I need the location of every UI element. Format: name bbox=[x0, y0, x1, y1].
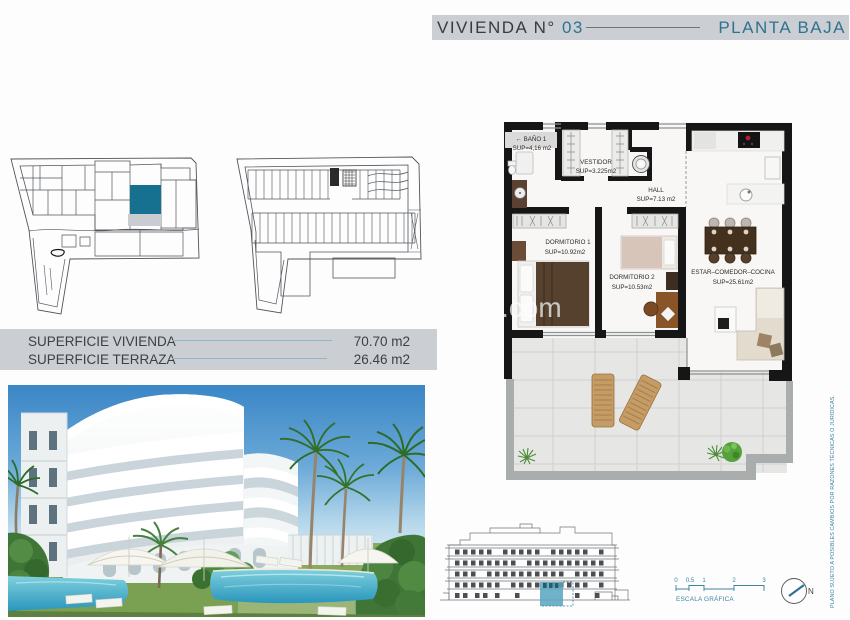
svg-text:DORMITORIO 2: DORMITORIO 2 bbox=[609, 274, 655, 281]
svg-text:ESCALA GRÁFICA: ESCALA GRÁFICA bbox=[676, 594, 734, 603]
svg-text:2: 2 bbox=[732, 578, 736, 584]
svg-text:HALL: HALL bbox=[648, 187, 664, 194]
svg-text:3: 3 bbox=[762, 578, 766, 584]
svg-text:SUP=25.61m2: SUP=25.61m2 bbox=[713, 279, 754, 286]
svg-text:1: 1 bbox=[702, 578, 706, 584]
svg-text:VESTIDOR: VESTIDOR bbox=[580, 159, 612, 166]
svg-text:DORMITORIO 1: DORMITORIO 1 bbox=[545, 239, 591, 246]
svg-text:0: 0 bbox=[674, 578, 678, 584]
svg-text:SUP=3.225m2: SUP=3.225m2 bbox=[576, 168, 617, 175]
svg-text:ESTAR–COMEDOR–COCINA: ESTAR–COMEDOR–COCINA bbox=[691, 269, 775, 276]
svg-text:N: N bbox=[808, 587, 814, 596]
svg-text:SUP=7.13 m2: SUP=7.13 m2 bbox=[637, 196, 676, 203]
svg-text:.com: .com bbox=[501, 292, 562, 323]
svg-text:SUP=4,16 m2: SUP=4,16 m2 bbox=[513, 145, 552, 152]
svg-text:SUP=10.53m2: SUP=10.53m2 bbox=[612, 284, 653, 291]
svg-text:0.5: 0.5 bbox=[686, 578, 695, 584]
svg-text:← BAÑO 1: ← BAÑO 1 bbox=[516, 136, 547, 143]
svg-text:SUP=10.92m2: SUP=10.92m2 bbox=[545, 249, 586, 256]
